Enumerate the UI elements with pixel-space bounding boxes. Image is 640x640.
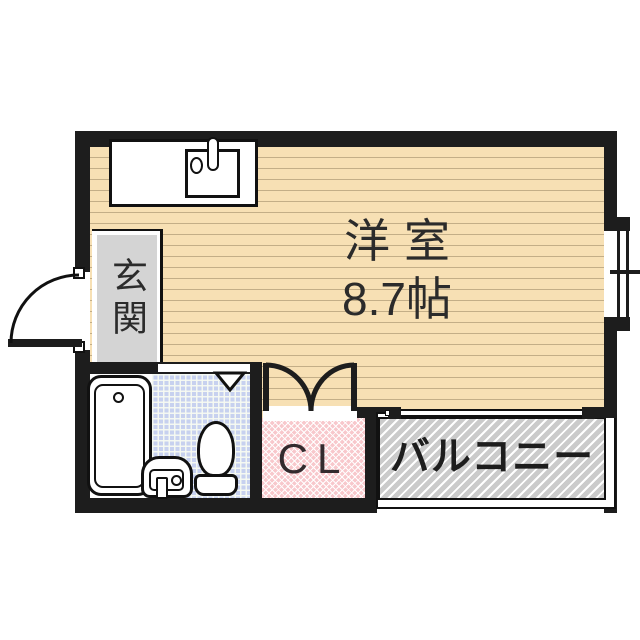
- floor-plan: 玄関 CL バルコニー 洋室 8.7帖: [0, 0, 640, 640]
- right-window-block-bottom: [604, 317, 630, 331]
- wall-bottom: [75, 498, 377, 513]
- entrance-door-arc: [11, 275, 79, 343]
- bathroom-door-opening: [158, 364, 250, 372]
- right-window-crossbar: [610, 270, 640, 274]
- sink-drain-icon: [190, 157, 203, 174]
- wall-block-window-right: [588, 407, 617, 418]
- wall-bathroom-right: [250, 362, 262, 498]
- right-window-pane-inner: [617, 231, 620, 317]
- closet-door-opening: [263, 406, 357, 421]
- main-room-label: 洋室: [247, 218, 547, 264]
- closet-label: CL: [262, 438, 365, 480]
- washbasin-tap-icon: [156, 477, 168, 499]
- right-window-opening: [604, 231, 617, 317]
- balcony-label: バルコニー: [378, 437, 606, 477]
- main-room-size-label: 8.7帖: [247, 276, 547, 322]
- faucet-icon: [207, 137, 219, 171]
- washbasin-drain-icon: [171, 475, 182, 486]
- bathtub-drain-icon: [113, 392, 124, 403]
- toilet-icon: [197, 421, 235, 477]
- door-hinge-top: [73, 267, 85, 279]
- toilet-base: [194, 474, 238, 496]
- closet-door-leaf-right: [351, 363, 357, 411]
- balcony-window-icon: [400, 409, 584, 417]
- right-window-pane-outer: [626, 231, 629, 317]
- entrance-label: 玄関: [97, 235, 157, 362]
- entrance-door-leaf: [8, 339, 82, 347]
- closet-door-leaf-left: [263, 363, 269, 411]
- right-window-block-top: [604, 217, 630, 231]
- balcony-window-cap-left-notch: [385, 410, 390, 416]
